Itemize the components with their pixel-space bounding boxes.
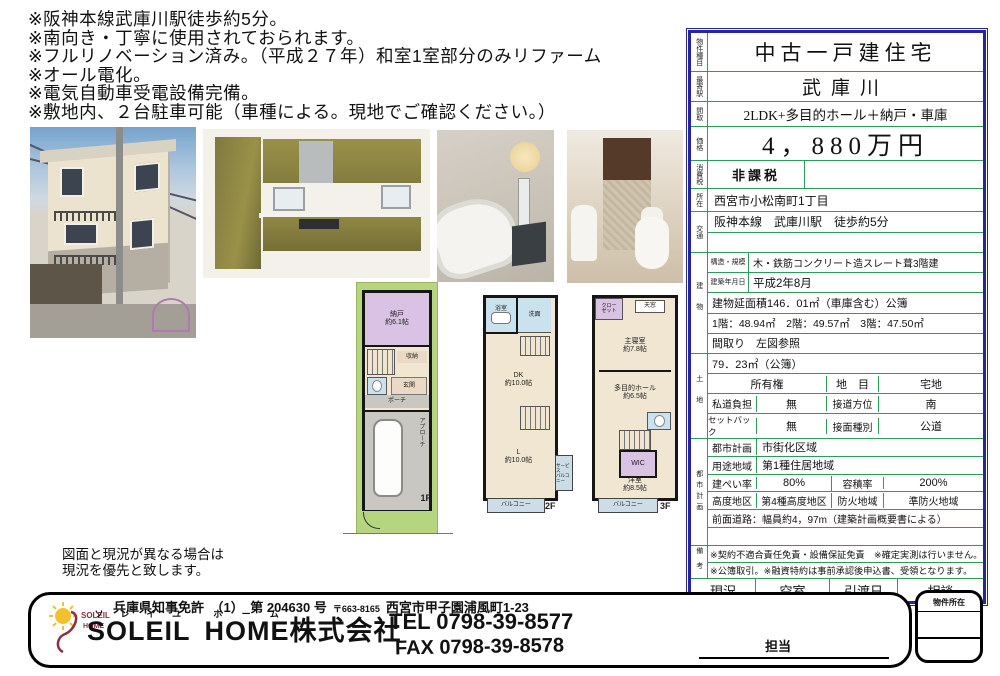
- structure-label: 構造・規模: [708, 253, 749, 272]
- location-box-divider: [918, 611, 980, 612]
- disclaimer-line: 現況を優先と致します。: [62, 563, 224, 579]
- flyer-page: ※阪神本線武庫川駅徒歩約5分。 ※南向き・丁寧に使用されておられます。 ※フルリ…: [0, 0, 1000, 676]
- room-label: 納戸: [390, 311, 404, 319]
- built-date-value: 平成2年8月: [749, 275, 983, 291]
- row-label-station: 最寄駅: [691, 72, 708, 101]
- floorplan-2f: 浴室 洗面 DK 約10.0帖 L 約10.0帖 サービス バルコニー バルコニ…: [483, 295, 573, 517]
- room-label: ポーチ: [388, 398, 406, 405]
- room-label: 約10.0帖: [505, 380, 533, 388]
- note-line: ※オール電化。: [28, 66, 602, 85]
- range-hood: [299, 141, 333, 183]
- toilet-icon: [372, 380, 382, 392]
- setback-label: セットバック: [708, 414, 756, 438]
- floorplan-3f-outline: クロー ゼット 天窓 主寝室 約7.8帖 多目的ホール 約6.5帖 WIC: [592, 295, 678, 501]
- room-label: WIC: [631, 460, 645, 468]
- bicycle: [152, 298, 190, 332]
- note-line: ※阪神本線武庫川駅徒歩約5分。: [28, 10, 602, 29]
- note-line: ※フルリノベーション済み。（平成２７年）和室1室部分のみリファーム: [28, 47, 602, 66]
- floor-tag-2f: 2F: [545, 501, 556, 511]
- disclaimer-line: 図面と現況が異なる場合は: [62, 547, 224, 563]
- footer-bar: SOLEIL HOME 兵庫県知事免許 （1） 第 204630 号 〒663-…: [28, 592, 912, 668]
- built-date-label: 建築年月日: [708, 273, 749, 292]
- city-empty-row: [708, 528, 983, 545]
- land-area: 79．23㎡（公簿）: [708, 356, 983, 372]
- washroom: 洗面: [518, 298, 551, 333]
- room-label: 収納: [406, 354, 418, 361]
- toilet-room-3f: [647, 412, 671, 430]
- balcony-2f: バルコニー: [487, 498, 545, 513]
- room-label: 主寝室: [625, 338, 646, 346]
- floor-tag-1f: 1F: [420, 493, 431, 503]
- property-location-box: 物件所在: [915, 590, 983, 663]
- bath-mat: [512, 222, 546, 267]
- ih-cooktop: [299, 219, 339, 229]
- room-label: 約10.0帖: [505, 457, 533, 465]
- bathroom-photo: [437, 130, 554, 282]
- tel-number: TEL 0798-39-8577: [389, 609, 573, 635]
- toilet-room: [367, 377, 387, 395]
- service-balcony: サービス バルコニー: [555, 455, 573, 491]
- bathroom-light: [510, 142, 540, 172]
- balcony-3f: バルコニー: [598, 498, 658, 513]
- company-ruby-home: ホーム: [205, 609, 290, 619]
- stairs: [520, 406, 550, 430]
- room-label: 天窓: [644, 303, 656, 310]
- station-value: 武庫川: [708, 72, 983, 101]
- floorplan-1f-outline: 納戸 約6.1帖 収納 玄関 ポーチ アプローチ: [362, 290, 432, 511]
- room-label: 約8.5帖: [623, 485, 647, 493]
- window: [64, 223, 98, 245]
- toilet-icon: [654, 415, 665, 427]
- road-type-value: 公道: [878, 418, 983, 434]
- fire-zone-value: 準防火地域: [883, 493, 983, 508]
- hand-basin: [571, 205, 597, 261]
- balcony-railing: [54, 211, 118, 221]
- ownership: 所有権: [708, 376, 826, 392]
- kitchen-window: [381, 185, 411, 209]
- room-label: サービス: [556, 463, 572, 473]
- stairs: [619, 430, 651, 450]
- floorplan-1f: 納戸 約6.1帖 収納 玄関 ポーチ アプローチ 1F: [357, 283, 437, 533]
- company-name-home: HOME: [205, 616, 290, 646]
- dining-kitchen: DK 約10.0帖: [486, 356, 551, 404]
- room-label: バルコニー: [556, 473, 572, 483]
- car-icon: [373, 419, 403, 497]
- room-label: 約7.8帖: [623, 346, 647, 354]
- floorplan-2f-outline: 浴室 洗面 DK 約10.0帖 L 約10.0帖: [483, 295, 558, 501]
- tub-icon: [491, 312, 511, 324]
- front-road: 前面道路：幅員約4，97m（建築計画概要書による）: [708, 511, 983, 526]
- property-type-value: 中古一戸建住宅: [708, 33, 983, 71]
- fire-zone-label: 防火地域: [831, 493, 883, 508]
- window: [134, 162, 160, 193]
- kitchen-photo: [203, 129, 430, 278]
- remarks-line1: ※契約不適合責任免責・設備保証免責 ※確定実測は行いません。: [708, 547, 983, 561]
- layout-value: 2LDK+多目的ホール＋納戸・車庫: [708, 102, 983, 126]
- kitchen-upper-cabinets: [263, 139, 421, 183]
- per-floor-areas: 1階：48.94㎡ 2階：49.57㎡ 3階：47.50㎡: [708, 316, 983, 331]
- remarks-line2: ※公簿取引。※融資特約は事前承認後申込書、受領となります。: [708, 563, 983, 577]
- total-floor-area: 建物延面積146．01㎡（車庫含む）公簿: [708, 295, 983, 311]
- access-empty-line: [708, 233, 983, 253]
- porch: ポーチ: [365, 395, 429, 408]
- window: [130, 218, 154, 251]
- company-name-soleil: SOLEIL: [87, 616, 191, 646]
- living-room: L 約10.0帖: [486, 432, 551, 482]
- row-label-tax: 消費税: [691, 161, 708, 188]
- direction-value: 南: [878, 396, 983, 412]
- row-label-location: 所在: [691, 189, 708, 211]
- coverage-value: 80%: [756, 477, 831, 489]
- fax-number: FAX 0798-39-8578: [395, 635, 564, 661]
- toilet-bowl: [635, 217, 669, 269]
- stairs: [367, 349, 395, 375]
- price-value: 4，880万円: [708, 127, 983, 160]
- gate-swing-arc: [363, 512, 380, 529]
- row-label-property-type: 物件種目: [691, 33, 708, 71]
- height-district-label: 高度地区: [708, 493, 756, 508]
- tax-value: 非課税: [708, 161, 805, 188]
- company-name-suffix: 株式会社: [290, 616, 402, 646]
- room-label: バルコニー: [501, 502, 531, 509]
- floor-tag-3f: 3F: [660, 501, 671, 511]
- multipurpose-hall: 多目的ホール 約6.5帖: [599, 376, 671, 410]
- row-label-layout: 間取: [691, 102, 708, 126]
- row-label-price: 価格: [691, 127, 708, 160]
- closet: 収納: [397, 351, 427, 363]
- room-label: 約6.5帖: [623, 393, 647, 401]
- stairs: [520, 336, 550, 356]
- road-type-label: 接面種別: [826, 419, 878, 434]
- property-table: 物件種目 中古一戸建住宅 最寄駅 武庫川 間取 2LDK+多目的ホール＋納戸・車…: [688, 30, 986, 604]
- master-bedroom: 主寝室 約7.8帖: [599, 322, 671, 372]
- room-label: 洋室: [628, 477, 642, 485]
- company-name: SOLEILソレイユHOMEホーム株式会社: [87, 609, 402, 648]
- company-ruby-soleil: ソレイユ: [87, 609, 191, 619]
- land-category-value: 宅地: [878, 376, 983, 392]
- kitchen-window: [273, 187, 305, 211]
- kitchen-tall-cabinet: [215, 137, 261, 269]
- closet-3f: クロー ゼット: [595, 298, 623, 320]
- private-road-label: 私道負担: [708, 396, 756, 411]
- approach-label: アプローチ: [417, 417, 426, 447]
- skylight: 天窓: [635, 300, 665, 313]
- kitchen-lower-cabinets: [263, 217, 421, 251]
- coverage-label: 建ぺい率: [708, 476, 756, 491]
- row-label-access: 交通: [691, 212, 708, 252]
- exterior-photo: [30, 127, 196, 338]
- entrance: 玄関: [391, 377, 427, 395]
- section-label-land: 土地: [691, 354, 708, 438]
- bath-room: 浴室: [486, 298, 518, 334]
- city-plan-value: 市街化区域: [756, 439, 983, 455]
- room-label: 洗面: [528, 312, 540, 319]
- setback-value: 無: [756, 418, 826, 434]
- staff-label: 担当: [765, 636, 791, 655]
- direction-label: 接道方位: [826, 396, 878, 411]
- window: [60, 167, 84, 197]
- city-plan-label: 都市計画: [708, 440, 756, 455]
- height-district-value: 第4種高度地区: [756, 493, 831, 508]
- private-road-value: 無: [756, 396, 826, 412]
- zoning-label: 用途地域: [708, 458, 756, 473]
- section-label-remarks: 備考: [691, 546, 708, 578]
- room-label: ゼット: [601, 309, 616, 315]
- sun-icon: [55, 608, 71, 624]
- note-line: ※南向き・丁寧に使用されておられます。: [28, 29, 602, 48]
- note-line: ※電気自動車受電設備完備。: [28, 84, 602, 103]
- toilet-shelf: [603, 138, 651, 180]
- room-label: L: [517, 449, 521, 457]
- structure-value: 木・鉄筋コンクリート造スレート葺3階建: [749, 255, 983, 270]
- staff-line: 担当: [699, 635, 889, 659]
- section-label-building: 建物: [691, 253, 708, 353]
- section-label-city-planning: 都市計画: [691, 439, 708, 545]
- madori-note: 間取り 左図参照: [708, 335, 983, 351]
- zoning-value: 第1種住居地域: [756, 457, 983, 473]
- ground-line: [343, 533, 453, 534]
- room-label: バルコニー: [613, 502, 643, 509]
- western-room: 洋室 約8.5帖: [599, 474, 671, 496]
- location-box-divider: [918, 637, 980, 639]
- tax-empty-cell: [805, 161, 983, 188]
- location-box-title: 物件所在: [918, 597, 980, 608]
- property-notes: ※阪神本線武庫川駅徒歩約5分。 ※南向き・丁寧に使用されておられます。 ※フルリ…: [28, 10, 602, 121]
- floorplan-3f: クロー ゼット 天窓 主寝室 約7.8帖 多目的ホール 約6.5帖 WIC: [592, 295, 682, 517]
- room-label: 約6.1帖: [385, 319, 409, 327]
- far-value: 200%: [883, 477, 983, 489]
- room-label: 多目的ホール: [614, 385, 656, 393]
- access-value: 阪神本線 武庫川駅 徒歩約5分: [708, 212, 983, 233]
- land-category-label: 地 目: [826, 376, 878, 392]
- room-label: DK: [514, 372, 524, 380]
- toilet-photo: [567, 130, 683, 283]
- storage-room: 納戸 約6.1帖: [365, 293, 429, 347]
- disclaimer: 図面と現況が異なる場合は 現況を優先と致します。: [62, 547, 224, 578]
- note-line: ※敷地内、２台駐車可能（車種による。現地でご確認ください。）: [28, 103, 602, 122]
- location-value: 西宮市小松南町1丁目: [708, 189, 983, 211]
- room-label: 玄関: [403, 383, 415, 390]
- wood-floor: [203, 252, 430, 278]
- far-label: 容積率: [831, 476, 883, 491]
